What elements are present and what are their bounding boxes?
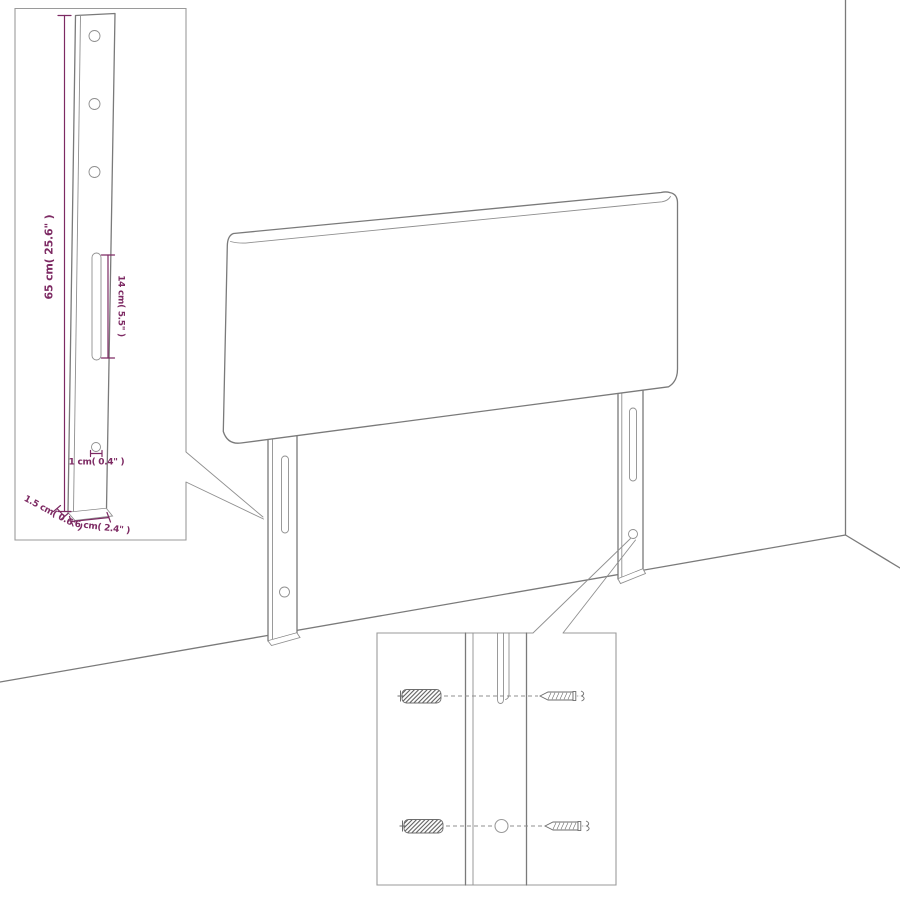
wall-floor-line-left: [0, 535, 846, 682]
dimension-height: 65 cm( 25.6" ): [43, 16, 72, 512]
screw-top-drawing: [540, 691, 584, 701]
callout-line-upper: [186, 452, 263, 517]
bracket-small-hole: [92, 443, 101, 452]
wall-floor-line-right: [846, 535, 900, 568]
bracket-slot: [92, 253, 101, 360]
leg-strip-hole: [495, 820, 508, 833]
dimension-bottom-hole-label: 1 cm( 0.4" ): [69, 458, 125, 468]
right-leg-mount-hole: [629, 530, 638, 539]
right-leg-slot: [630, 408, 637, 481]
callout-line-right: [563, 540, 636, 633]
wall-plug-bottom-drawing: [400, 820, 444, 834]
leg-strip-slot-inner: [506, 633, 510, 700]
hardware-detail-inset: [377, 539, 636, 886]
headboard-left-leg: [268, 432, 300, 646]
callout-line-left: [533, 539, 631, 634]
assembly-diagram: 65 cm( 25.6" ) 14 cm( 5.5" ) 1 cm( 0.4" …: [0, 0, 900, 900]
leg-strip-slot: [498, 633, 504, 704]
left-leg-hole: [280, 587, 290, 597]
headboard-right-leg: [618, 387, 646, 584]
panel-outline: [223, 192, 677, 443]
bracket-hole-lower: [89, 167, 100, 178]
bracket-hole-middle: [89, 99, 100, 110]
screw-bottom-drawing: [545, 821, 589, 831]
bracket-hole-top: [89, 31, 100, 42]
wall-plug-top-drawing: [398, 690, 442, 704]
headboard-panel: [223, 192, 677, 443]
diagram-canvas: 65 cm( 25.6" ) 14 cm( 5.5" ) 1 cm( 0.4" …: [0, 0, 900, 900]
inset-frame: [377, 633, 616, 885]
dimension-slot-label: 14 cm( 5.5" ): [116, 275, 126, 337]
left-leg-slot: [282, 456, 289, 533]
callout-line-lower: [186, 482, 264, 519]
dimension-width-label: 6 cm( 2.4" ): [74, 520, 131, 537]
dimension-height-label: 65 cm( 25.6" ): [43, 214, 56, 299]
